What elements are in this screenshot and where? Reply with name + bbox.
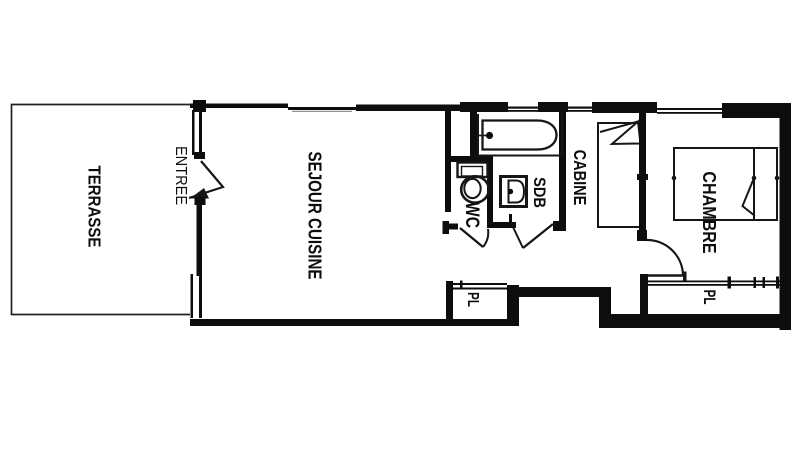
svg-text:ENTREE: ENTREE xyxy=(172,146,190,205)
svg-text:SDB: SDB xyxy=(530,177,548,208)
svg-text:TERRASSE: TERRASSE xyxy=(84,166,105,248)
svg-text:CHAMBRE: CHAMBRE xyxy=(699,171,720,253)
svg-text:WC: WC xyxy=(462,202,484,228)
svg-text:PL: PL xyxy=(464,292,482,307)
svg-text:SEJOUR CUISINE: SEJOUR CUISINE xyxy=(304,151,325,279)
svg-text:CABINE: CABINE xyxy=(570,150,590,206)
svg-text:PL: PL xyxy=(699,290,718,305)
